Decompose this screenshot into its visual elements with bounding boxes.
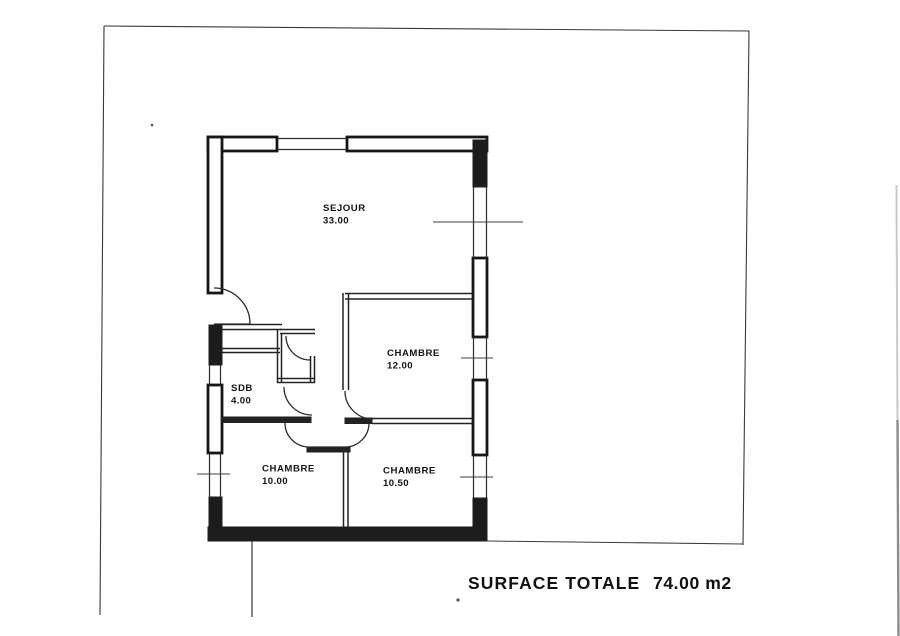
total-surface-label: SURFACE TOTALE (468, 573, 640, 593)
room-label-chambre12: CHAMBRE (387, 348, 440, 359)
room-area-sejour: 33.00 (323, 216, 349, 227)
corridor-double-door (285, 423, 369, 447)
sdb-door (284, 387, 312, 415)
room-area-chambre12: 12.00 (387, 361, 413, 372)
scan-artifacts (151, 124, 899, 636)
room-area-chambre1050: 10.50 (383, 478, 409, 489)
room-label-chambre10: CHAMBRE (262, 464, 315, 475)
surface-summary: SURFACE TOTALE 74.00 m2 (468, 573, 732, 593)
room-area-sdb: 4.00 (231, 396, 251, 407)
total-surface-value: 74.00 m2 (653, 573, 732, 593)
room-label-sdb: SDB (231, 383, 253, 394)
chambre12-door (345, 391, 373, 419)
wc-door (286, 336, 310, 360)
interior-walls (222, 293, 473, 527)
room-area-chambre10: 10.00 (262, 476, 288, 487)
scanned-floor-plan-page: SEJOUR 33.00 CHAMBRE 12.00 SDB 4.00 CHAM… (0, 0, 900, 636)
room-label-sejour: SEJOUR (323, 203, 366, 214)
ground-line (487, 541, 743, 544)
room-labels: SEJOUR 33.00 CHAMBRE 12.00 SDB 4.00 CHAM… (231, 203, 440, 489)
room-label-chambre1050: CHAMBRE (383, 466, 436, 477)
floor-plan-drawing: SEJOUR 33.00 CHAMBRE 12.00 SDB 4.00 CHAM… (0, 0, 900, 636)
